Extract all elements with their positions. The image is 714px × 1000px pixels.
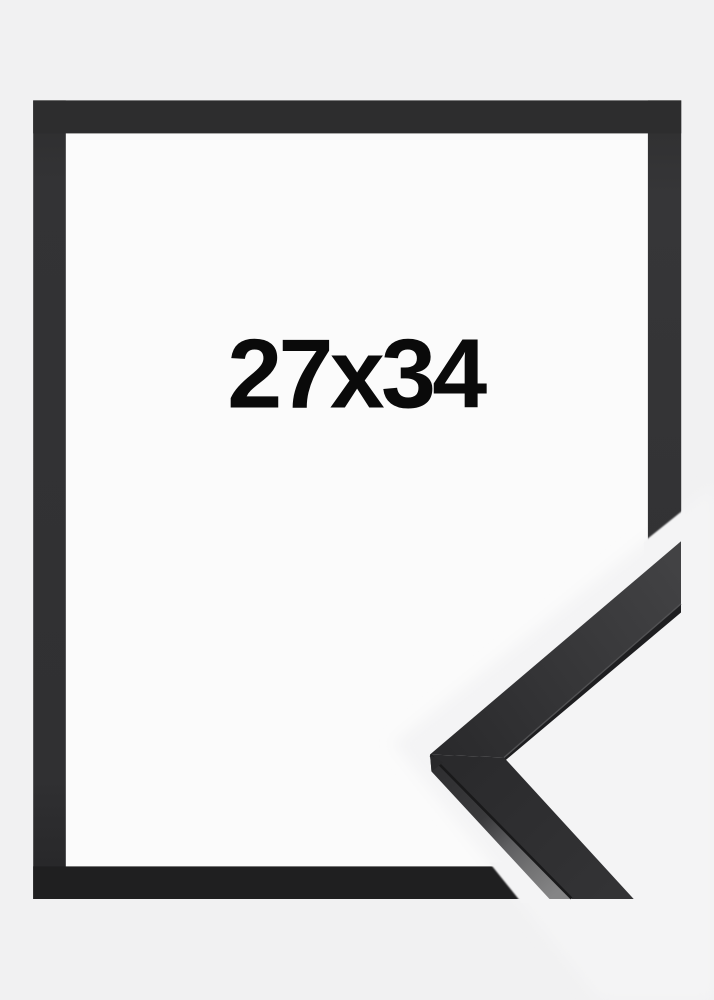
svg-text:27x34: 27x34 bbox=[227, 318, 487, 428]
